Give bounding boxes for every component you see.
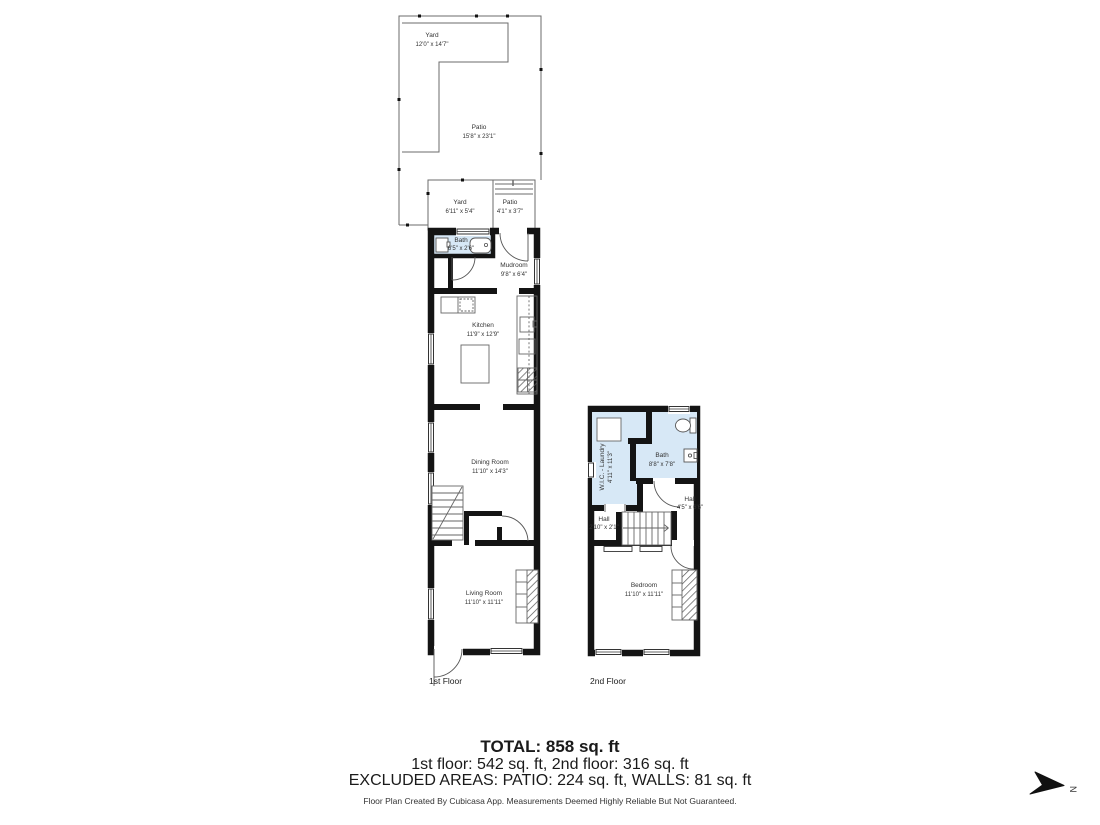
- stairwell-below-icon: [672, 570, 697, 620]
- patio-small-label: Patio: [503, 199, 518, 206]
- sink-2f-icon: [684, 449, 697, 462]
- second-floor-plan: W.I.C. - Laundry 4'11" x 11'3" Bath 8'8"…: [586, 404, 703, 686]
- toilet-icon: [676, 418, 697, 433]
- yard-small-dims: 6'11" x 5'4": [445, 209, 474, 215]
- yard-top-label: Yard: [425, 32, 439, 39]
- wic-laundry-dims: 4'11" x 11'3": [608, 451, 614, 483]
- bath-1f-label: Bath: [454, 237, 468, 244]
- bath-2f-dims: 8'8" x 7'8": [649, 462, 675, 468]
- second-floor-label: 2nd Floor: [590, 676, 626, 686]
- hall-left-label: Hall: [598, 516, 610, 523]
- stairwell-above-icon: [516, 570, 538, 623]
- bedroom-label: Bedroom: [631, 582, 657, 589]
- washer-icon: [597, 418, 621, 441]
- yard-top-dims: 12'0" x 14'7": [416, 42, 449, 48]
- stove-icon: [518, 368, 537, 392]
- total-area-text: TOTAL: 858 sq. ft: [0, 737, 1100, 757]
- dining-dims: 11'10" x 14'3": [472, 469, 508, 475]
- disclaimer-text: Floor Plan Created By Cubicasa App. Meas…: [0, 796, 1100, 806]
- patio-top-dims: 15'8" x 23'1": [463, 134, 496, 140]
- first-floor-plan: Bath 6'5" x 2'6" Mudroom 9'8" x 6'4" Kit…: [426, 226, 542, 686]
- floor-plan-page: Yard 12'0" x 14'7" Patio 15'8" x 23'1" Y…: [0, 0, 1100, 825]
- hall-right-dims: 4'5" x 6'6": [677, 505, 703, 511]
- hall-right-label: Hall: [684, 496, 696, 503]
- excluded-areas-text: EXCLUDED AREAS: PATIO: 224 sq. ft, WALLS…: [0, 772, 1100, 790]
- dining-label: Dining Room: [471, 459, 509, 466]
- mudroom-label: Mudroom: [500, 262, 527, 269]
- floor-plan-drawing: Yard 12'0" x 14'7" Patio 15'8" x 23'1" Y…: [0, 0, 1100, 825]
- wic-laundry-label: W.I.C. - Laundry: [599, 443, 606, 491]
- bath-1f-dims: 6'5" x 2'6": [448, 246, 474, 252]
- mudroom-dims: 9'8" x 6'4": [501, 272, 527, 278]
- patio-top-label: Patio: [472, 124, 487, 131]
- bedroom-dims: 11'10" x 11'11": [625, 592, 663, 598]
- kitchen-dims: 11'9" x 12'9": [467, 332, 499, 338]
- hall-left-dims: 2'10" x 2'1": [589, 525, 619, 531]
- patio-small-dims: 4'1" x 3'7": [497, 209, 523, 215]
- living-dims: 11'10" x 11'11": [465, 600, 503, 606]
- stairs-1f: [432, 486, 463, 540]
- yard-small-label: Yard: [453, 199, 467, 206]
- living-label: Living Room: [466, 590, 502, 597]
- outdoor-boundary: [399, 16, 541, 230]
- first-floor-label: 1st Floor: [429, 676, 462, 686]
- bath-2f-label: Bath: [655, 452, 669, 459]
- kitchen-label: Kitchen: [472, 322, 494, 329]
- stairs-2f: [622, 512, 671, 545]
